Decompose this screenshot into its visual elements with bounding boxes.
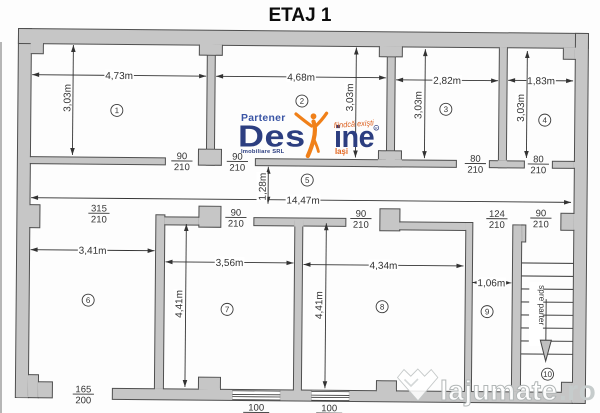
svg-text:124: 124: [489, 209, 505, 220]
svg-text:14,47m: 14,47m: [286, 195, 319, 206]
svg-text:3,03m: 3,03m: [413, 91, 424, 119]
svg-text:210: 210: [228, 219, 244, 230]
svg-text:90: 90: [231, 208, 242, 219]
svg-text:4,34m: 4,34m: [370, 261, 398, 272]
svg-text:3,03m: 3,03m: [516, 94, 527, 122]
svg-text:210: 210: [353, 220, 369, 231]
svg-text:1: 1: [115, 106, 120, 115]
svg-text:4,41m: 4,41m: [314, 291, 325, 319]
svg-text:210: 210: [174, 162, 190, 173]
svg-text:5: 5: [305, 176, 310, 185]
svg-text:3,56m: 3,56m: [216, 258, 244, 269]
svg-text:1,06m: 1,06m: [477, 278, 505, 289]
svg-text:4,73m: 4,73m: [105, 71, 133, 82]
svg-text:100: 100: [248, 403, 264, 413]
svg-text:Iaşi: Iaşi: [335, 147, 348, 156]
svg-text:210: 210: [533, 219, 549, 230]
svg-text:90: 90: [356, 209, 367, 220]
svg-text:80: 80: [533, 154, 544, 165]
svg-text:8: 8: [380, 303, 385, 312]
svg-text:4,68m: 4,68m: [287, 72, 315, 83]
svg-text:210: 210: [91, 214, 107, 225]
svg-text:6: 6: [86, 296, 91, 305]
svg-text:2,82m: 2,82m: [433, 76, 461, 87]
svg-text:200: 200: [75, 395, 91, 406]
svg-text:3,03m: 3,03m: [62, 84, 73, 112]
svg-text:2: 2: [300, 97, 305, 106]
svg-text:100: 100: [321, 403, 337, 413]
svg-text:315: 315: [91, 203, 107, 214]
svg-text:3,03m: 3,03m: [345, 83, 356, 111]
svg-text:210: 210: [530, 165, 546, 176]
svg-text:1,83m: 1,83m: [527, 76, 555, 87]
svg-text:90: 90: [177, 151, 188, 162]
svg-text:9: 9: [485, 307, 490, 316]
svg-text:210: 210: [467, 165, 483, 176]
svg-text:Imobiliare SRL: Imobiliare SRL: [241, 149, 285, 155]
svg-text:80: 80: [470, 154, 481, 165]
svg-text:ETAJ 1: ETAJ 1: [268, 5, 331, 26]
svg-text:4: 4: [542, 116, 547, 125]
svg-text:210: 210: [229, 163, 245, 174]
svg-text:.ro: .ro: [559, 375, 596, 406]
svg-text:3: 3: [444, 105, 449, 114]
svg-text:210: 210: [489, 220, 505, 231]
svg-text:3,41m: 3,41m: [79, 246, 107, 257]
svg-text:lajumate: lajumate: [440, 375, 558, 406]
svg-text:165: 165: [75, 384, 91, 395]
svg-text:90: 90: [536, 208, 547, 219]
svg-text:1,28m: 1,28m: [258, 173, 269, 201]
svg-text:4,41m: 4,41m: [174, 290, 185, 318]
svg-text:7: 7: [225, 305, 230, 314]
